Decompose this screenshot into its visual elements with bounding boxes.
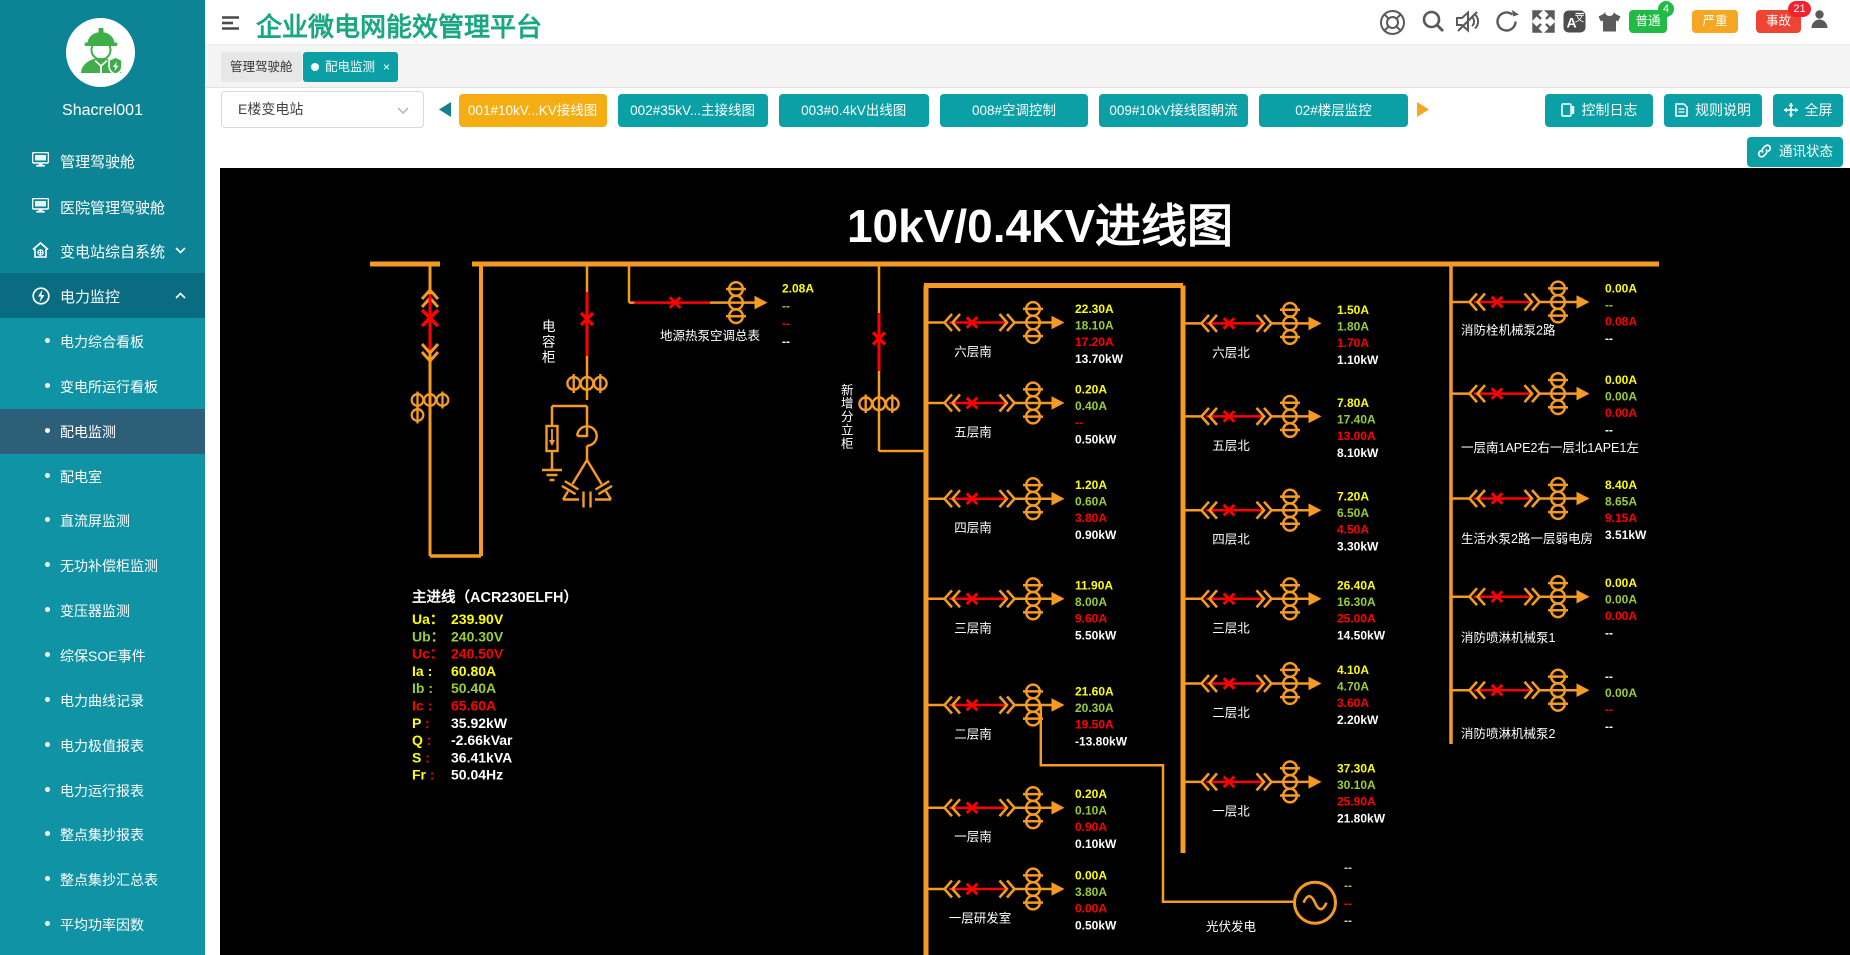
svg-text:22.30A: 22.30A <box>1075 302 1114 316</box>
svg-text:四层北: 四层北 <box>1212 533 1250 547</box>
svg-text:0.00A: 0.00A <box>1605 390 1637 404</box>
svg-text:0.00A: 0.00A <box>1605 406 1637 420</box>
svg-text:0.60A: 0.60A <box>1075 495 1107 509</box>
svg-text:18.10A: 18.10A <box>1075 319 1114 333</box>
svg-text:0.10kW: 0.10kW <box>1075 837 1117 851</box>
svg-text:一层南: 一层南 <box>954 829 992 844</box>
svg-text:生活水泵2路一层弱电房: 生活水泵2路一层弱电房 <box>1461 531 1593 546</box>
svg-text:Q :: Q : <box>412 732 431 748</box>
svg-text:1.80A: 1.80A <box>1337 319 1369 333</box>
svg-text:7.80A: 7.80A <box>1337 396 1369 410</box>
svg-text:Ic :: Ic : <box>412 698 432 714</box>
svg-text:25.90A: 25.90A <box>1337 794 1376 808</box>
svg-text:0.00A: 0.00A <box>1605 373 1637 387</box>
svg-text:3.51kW: 3.51kW <box>1605 528 1647 542</box>
svg-text:0.20A: 0.20A <box>1075 787 1107 801</box>
svg-text:0.00A: 0.00A <box>1605 609 1637 623</box>
svg-text:1.50A: 1.50A <box>1337 303 1369 317</box>
svg-text:4.70A: 4.70A <box>1337 680 1369 694</box>
svg-text:文: 文 <box>1575 13 1585 25</box>
svg-text:35.92kW: 35.92kW <box>451 715 508 731</box>
svg-text:--: -- <box>1605 332 1613 346</box>
svg-text:电: 电 <box>542 319 556 334</box>
svg-text:13.00A: 13.00A <box>1337 429 1376 443</box>
svg-text:Ib :: Ib : <box>412 680 433 696</box>
svg-text:2.08A: 2.08A <box>782 282 814 296</box>
svg-text:消防栓机械泵2路: 消防栓机械泵2路 <box>1461 323 1556 338</box>
svg-text:240.30V: 240.30V <box>451 628 504 644</box>
svg-text:二层北: 二层北 <box>1212 706 1250 720</box>
svg-text:21.80kW: 21.80kW <box>1337 811 1386 825</box>
svg-text:36.41kVA: 36.41kVA <box>451 749 512 765</box>
svg-text:65.60A: 65.60A <box>451 698 496 714</box>
svg-text:30.10A: 30.10A <box>1337 778 1376 792</box>
svg-text:4.50A: 4.50A <box>1337 523 1369 537</box>
svg-text:五层北: 五层北 <box>1212 439 1250 453</box>
svg-text:--: -- <box>1605 703 1613 717</box>
svg-text:三层北: 三层北 <box>1212 621 1250 635</box>
svg-text:4.10A: 4.10A <box>1337 663 1369 677</box>
svg-text:8.00A: 8.00A <box>1075 595 1107 609</box>
svg-text:消防喷淋机械泵2: 消防喷淋机械泵2 <box>1461 726 1556 741</box>
svg-text:8.10kW: 8.10kW <box>1337 446 1379 460</box>
svg-text:0.50kW: 0.50kW <box>1075 433 1117 447</box>
svg-text:20.30A: 20.30A <box>1075 701 1114 715</box>
svg-text:四层南: 四层南 <box>954 520 992 535</box>
svg-text:Ia :: Ia : <box>412 663 432 679</box>
svg-text:1.70A: 1.70A <box>1337 336 1369 350</box>
svg-text:2.20kW: 2.20kW <box>1337 713 1379 727</box>
svg-text:9.15A: 9.15A <box>1605 511 1637 525</box>
svg-text:--: -- <box>782 317 790 331</box>
svg-text:3.60A: 3.60A <box>1337 696 1369 710</box>
svg-text:17.20A: 17.20A <box>1075 335 1114 349</box>
svg-text:S :: S : <box>412 749 430 765</box>
svg-text:0.50kW: 0.50kW <box>1075 919 1117 933</box>
svg-text:37.30A: 37.30A <box>1337 761 1376 775</box>
svg-text:50.04Hz: 50.04Hz <box>451 767 503 783</box>
svg-text:-13.80kW: -13.80kW <box>1075 735 1128 749</box>
svg-text:9.60A: 9.60A <box>1075 611 1107 625</box>
svg-text:3.30kW: 3.30kW <box>1337 540 1379 554</box>
svg-text:0.00A: 0.00A <box>1605 282 1637 296</box>
svg-text:14.50kW: 14.50kW <box>1337 628 1386 642</box>
svg-text:0.00A: 0.00A <box>1605 686 1637 700</box>
svg-text:地源热泵空调总表: 地源热泵空调总表 <box>660 329 761 343</box>
svg-text:--: -- <box>1605 626 1613 640</box>
svg-text:19.50A: 19.50A <box>1075 718 1114 732</box>
svg-text:Uc：: Uc： <box>412 646 444 662</box>
svg-text:六层南: 六层南 <box>954 344 992 359</box>
svg-text:1.10kW: 1.10kW <box>1337 353 1379 367</box>
svg-text:--: -- <box>1605 720 1613 734</box>
svg-text:六层北: 六层北 <box>1212 346 1250 360</box>
svg-text:增: 增 <box>841 396 854 411</box>
svg-text:三层南: 三层南 <box>954 620 992 635</box>
svg-text:--: -- <box>1075 416 1083 430</box>
svg-text:二层南: 二层南 <box>954 727 992 742</box>
svg-text:3.80A: 3.80A <box>1075 511 1107 525</box>
svg-text:--: -- <box>1605 670 1613 684</box>
svg-text:25.00A: 25.00A <box>1337 611 1376 625</box>
svg-text:0.00A: 0.00A <box>1075 902 1107 916</box>
svg-text:60.80A: 60.80A <box>451 663 496 679</box>
svg-text:5.50kW: 5.50kW <box>1075 628 1117 642</box>
svg-text:8.65A: 8.65A <box>1605 495 1637 509</box>
svg-text:17.40A: 17.40A <box>1337 412 1376 426</box>
svg-text:一层研发室: 一层研发室 <box>949 911 1012 926</box>
svg-text:Fr :: Fr : <box>412 767 435 783</box>
svg-text:--: -- <box>1605 298 1613 312</box>
svg-text:0.00A: 0.00A <box>1075 869 1107 883</box>
svg-text:一层北: 一层北 <box>1212 804 1250 818</box>
svg-text:11.90A: 11.90A <box>1075 578 1113 592</box>
svg-text:0.08A: 0.08A <box>1605 315 1637 329</box>
svg-text:10kV/0.4KV进线图: 10kV/0.4KV进线图 <box>847 200 1233 252</box>
svg-text:P :: P : <box>412 715 430 731</box>
svg-text:13.70kW: 13.70kW <box>1075 352 1124 366</box>
svg-text:新: 新 <box>841 382 854 397</box>
svg-text:0.40A: 0.40A <box>1075 399 1107 413</box>
svg-text:--: -- <box>1344 879 1352 893</box>
svg-text:0.00A: 0.00A <box>1605 593 1637 607</box>
svg-text:7.20A: 7.20A <box>1337 490 1369 504</box>
svg-text:柜: 柜 <box>542 350 556 365</box>
svg-text:240.50V: 240.50V <box>451 646 504 662</box>
svg-text:五层南: 五层南 <box>954 425 992 440</box>
svg-text:8.40A: 8.40A <box>1605 478 1637 492</box>
svg-text:一层南1APE2右一层北1APE1左: 一层南1APE2右一层北1APE1左 <box>1461 440 1639 455</box>
svg-text:光伏发电: 光伏发电 <box>1206 919 1257 934</box>
svg-text:柜: 柜 <box>841 437 854 451</box>
svg-text:0.90kW: 0.90kW <box>1075 528 1117 542</box>
svg-text:--: -- <box>1344 861 1352 875</box>
svg-text:主进线（ACR230ELFH）: 主进线（ACR230ELFH） <box>412 588 578 606</box>
svg-text:0.10A: 0.10A <box>1075 804 1107 818</box>
svg-text:0.00A: 0.00A <box>1605 576 1637 590</box>
svg-text:21.60A: 21.60A <box>1075 685 1114 699</box>
svg-text:50.40A: 50.40A <box>451 680 496 696</box>
svg-text:3.80A: 3.80A <box>1075 885 1107 899</box>
svg-text:0.20A: 0.20A <box>1075 383 1107 397</box>
svg-text:立: 立 <box>841 423 854 438</box>
svg-text:-2.66kVar: -2.66kVar <box>451 732 513 748</box>
svg-text:1.20A: 1.20A <box>1075 478 1107 492</box>
svg-text:26.40A: 26.40A <box>1337 578 1376 592</box>
svg-text:239.90V: 239.90V <box>451 611 504 627</box>
svg-text:分: 分 <box>841 410 854 424</box>
svg-text:Ub：: Ub： <box>412 628 445 644</box>
svg-text:Ua：: Ua： <box>412 611 444 627</box>
svg-text:--: -- <box>1344 897 1352 911</box>
svg-text:6.50A: 6.50A <box>1337 506 1369 520</box>
svg-text:--: -- <box>782 299 790 313</box>
svg-text:容: 容 <box>542 334 556 350</box>
svg-text:16.30A: 16.30A <box>1337 595 1376 609</box>
svg-text:0.90A: 0.90A <box>1075 820 1107 834</box>
svg-text:--: -- <box>1605 423 1613 437</box>
svg-text:--: -- <box>782 335 790 349</box>
svg-text:--: -- <box>1344 914 1352 928</box>
svg-text:消防喷淋机械泵1: 消防喷淋机械泵1 <box>1461 630 1556 645</box>
